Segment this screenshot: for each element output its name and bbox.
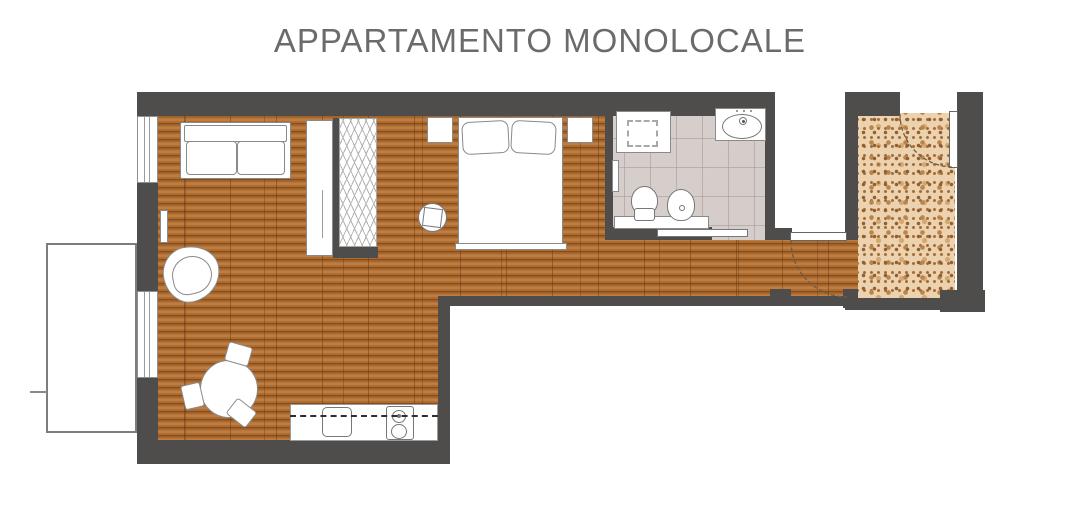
window-pane-line (144, 117, 145, 182)
window-pane-line (149, 117, 150, 182)
toilet-tank (634, 208, 655, 221)
window-upper-left (137, 116, 158, 183)
entry-top-wall (845, 92, 900, 116)
bathroom-vanity (614, 216, 709, 229)
bathroom-right-wall (765, 112, 775, 240)
faucet-dot (736, 110, 738, 112)
window-pane-line (149, 292, 150, 377)
pillow-left (461, 120, 510, 155)
sofa-cushion-left (186, 141, 237, 175)
burner-large (391, 424, 407, 439)
entry-right-wall (957, 92, 983, 307)
bathroom-radiator (612, 160, 619, 192)
bed-footboard (455, 243, 567, 250)
plan-title: APPARTAMENTO MONOLOCALE (0, 22, 1080, 60)
side-table-top (422, 207, 443, 228)
kitchen-sink (322, 407, 352, 437)
nightstand-right (567, 117, 593, 143)
kitchen-counter (290, 404, 438, 441)
bathroom-sliding-door (657, 229, 748, 237)
entry-hall-floor (858, 113, 955, 300)
bidet-drain (679, 205, 685, 211)
sofa-cushion-right (237, 141, 285, 175)
window-pane-line (144, 292, 145, 377)
pillow-right (510, 120, 557, 155)
corridor-door-leaf (790, 232, 847, 241)
wardrobe-cabinet (306, 120, 333, 256)
shower-drain-outline (627, 120, 658, 147)
corridor-bottom-wall (438, 296, 858, 306)
faucet-dot (750, 110, 752, 112)
balcony-partition-line (30, 391, 47, 393)
left-wall-mid (137, 183, 158, 291)
nightstand-left (427, 117, 453, 143)
entry-door-leaf (949, 111, 958, 168)
top-wall (137, 92, 775, 116)
cabinet-handle-line (322, 190, 323, 238)
window-lower-left (137, 291, 158, 378)
corridor-door-jamb-left (770, 289, 791, 306)
open-closet-hatch (339, 118, 377, 247)
closet-bottom-wall (333, 247, 378, 258)
faucet-dot (743, 110, 745, 112)
radiator (160, 210, 168, 243)
faucet-center-dot (742, 120, 745, 123)
bottom-wall (137, 440, 450, 464)
sofa-backrest (184, 125, 287, 142)
balcony (46, 243, 137, 433)
upper-cabinets-dashed-line (290, 415, 438, 417)
floor-plan: APPARTAMENTO MONOLOCALE (0, 0, 1080, 516)
lower-room-right-wall (438, 296, 450, 464)
